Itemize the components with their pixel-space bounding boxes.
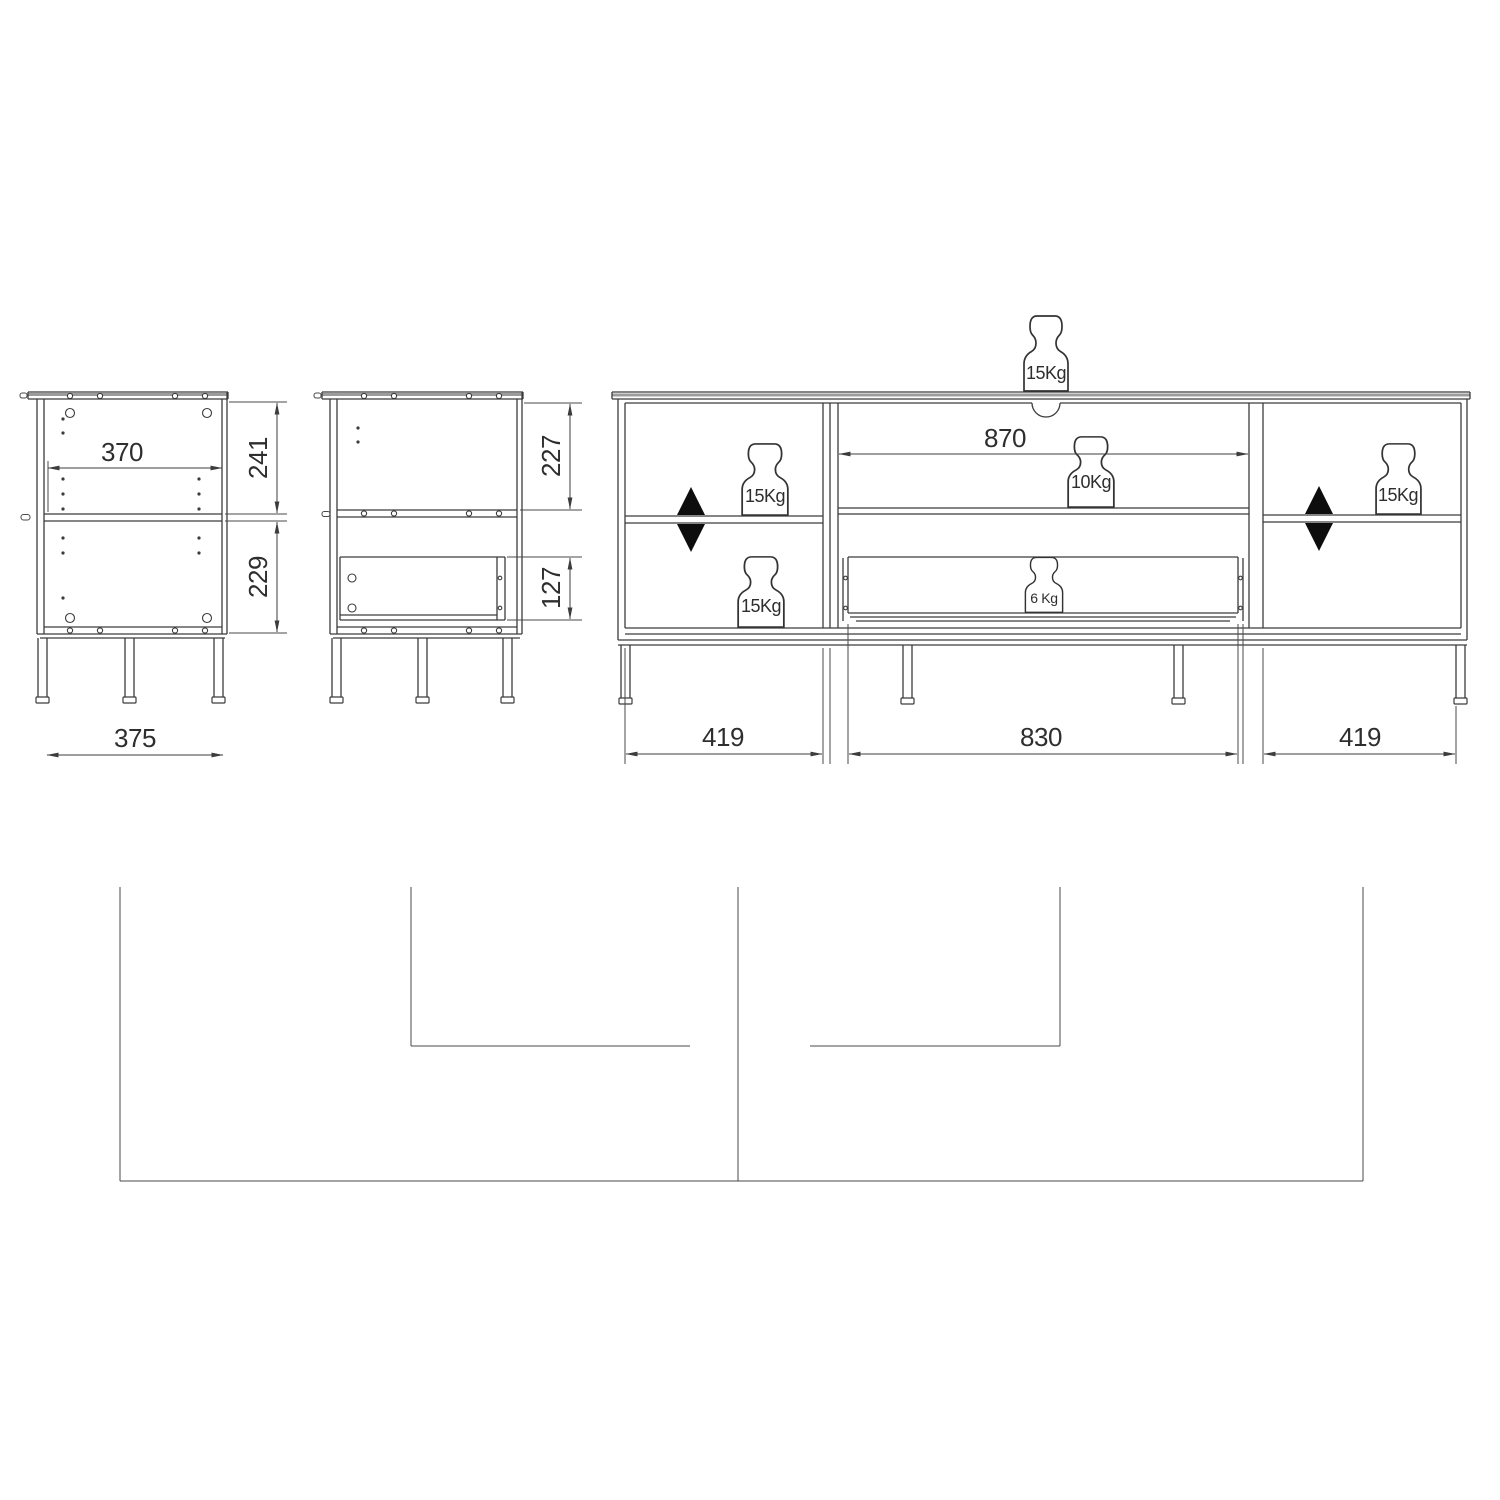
- bottom-panel: [618, 628, 1467, 645]
- dim-label-830: 830: [1020, 722, 1062, 752]
- weight-label: 10Kg: [1071, 472, 1111, 492]
- weight-label: 15Kg: [741, 596, 781, 616]
- legs: [36, 638, 225, 703]
- technical-drawing: 370 241 229 375: [0, 0, 1500, 1500]
- dim-base-width: 375: [47, 723, 223, 755]
- side-view-left: 370 241 229 375: [20, 392, 287, 755]
- dim-label-419-left: 419: [702, 722, 744, 752]
- right-wall: [517, 392, 522, 634]
- screws: [61, 393, 211, 633]
- dim-inner-width: 370: [48, 437, 222, 512]
- wall-fixing-hook-icon: [314, 393, 321, 398]
- weight-15kg-left-shelf-icon: 15Kg: [742, 444, 788, 515]
- top-panel: [20, 392, 228, 399]
- right-wall: [1461, 399, 1467, 640]
- dim-upper-height: 241: [225, 402, 287, 514]
- weight-15kg-top-icon: 15Kg: [1024, 316, 1068, 391]
- dim-label-870: 870: [984, 423, 1026, 453]
- cam-lock-icon: [203, 409, 212, 418]
- weight-15kg-right-shelf-icon: 15Kg: [1376, 444, 1421, 514]
- top-panel: [612, 392, 1470, 399]
- dim-label-229: 229: [243, 556, 273, 598]
- left-wall: [37, 399, 44, 634]
- shelf: [21, 514, 222, 521]
- right-shelf: [1263, 515, 1461, 522]
- drawer-side-view: [340, 557, 505, 620]
- weight-label: 15Kg: [745, 486, 785, 506]
- top-panel: [314, 392, 523, 399]
- left-partition: [823, 403, 838, 628]
- dim-label-370: 370: [101, 437, 143, 467]
- middle-shelf: [838, 508, 1249, 514]
- dim-label-419-right: 419: [1339, 722, 1381, 752]
- cam-lock-icon: [66, 614, 75, 623]
- left-wall: [330, 399, 337, 634]
- screws: [356, 393, 501, 443]
- weight-15kg-left-bottom-icon: 15Kg: [738, 557, 784, 627]
- shelf-pin-icon: [322, 512, 330, 517]
- legs: [619, 645, 1467, 704]
- drawing-sheet: 370 241 229 375: [0, 0, 1500, 1500]
- wall-fixing-hook-icon: [20, 393, 27, 398]
- weight-label: 6 Kg: [1030, 590, 1058, 606]
- legs: [330, 638, 514, 703]
- bottom-panel: [330, 627, 522, 638]
- dim-middle-clear-width: 870: [839, 423, 1248, 454]
- dim-drawer-height: 127: [507, 557, 582, 620]
- dim-label-127: 127: [536, 567, 566, 609]
- right-wall: [222, 392, 227, 634]
- cam-lock-icon: [203, 614, 212, 623]
- weight-label: 15Kg: [1026, 363, 1066, 383]
- middle-rail: [322, 510, 517, 517]
- left-shelf: [625, 516, 823, 523]
- side-view-middle: 227 127: [314, 392, 582, 703]
- weight-6kg-drawer-icon: 6 Kg: [1025, 557, 1062, 612]
- right-partition: [1249, 403, 1263, 628]
- shelf-adjust-arrow-icon: [677, 487, 705, 552]
- dim-label-227: 227: [536, 435, 566, 477]
- dim-upper-height: 227: [520, 403, 582, 510]
- shelf-adjust-arrow-icon: [1305, 486, 1333, 551]
- dim-label-241: 241: [243, 437, 273, 479]
- shelf-pin-icon: [21, 515, 30, 521]
- front-view: 15Kg 15Kg 15Kg 10Kg 6 Kg 15Kg 870: [612, 316, 1470, 764]
- dim-lower-height: 229: [225, 521, 287, 633]
- page-frame-lines: [120, 887, 1363, 1181]
- bottom-panel: [37, 627, 227, 638]
- weight-label: 15Kg: [1378, 485, 1418, 505]
- cam-lock-icon: [66, 409, 75, 418]
- dim-label-375: 375: [114, 723, 156, 753]
- cable-notch: [625, 403, 1461, 417]
- left-wall: [618, 399, 625, 640]
- weight-10kg-middle-shelf-icon: 10Kg: [1068, 437, 1114, 507]
